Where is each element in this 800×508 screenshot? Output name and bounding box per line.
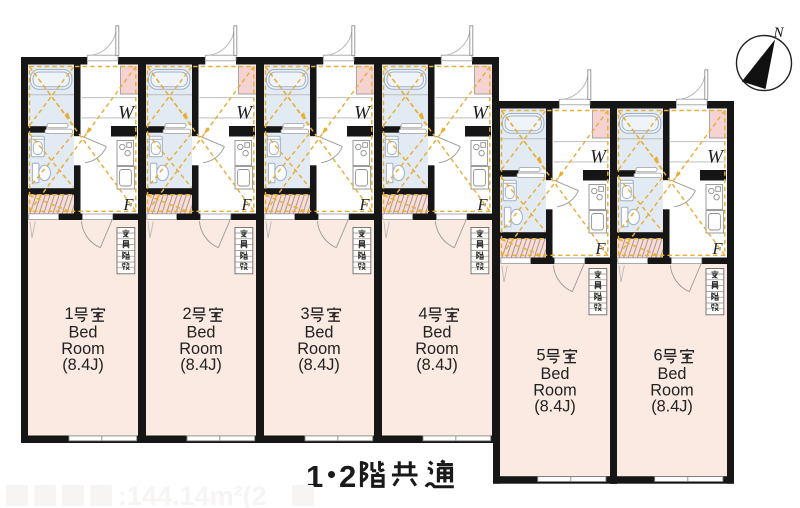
svg-text:4: 4 <box>418 305 427 323</box>
svg-text:W: W <box>472 102 490 123</box>
svg-text:Bed: Bed <box>187 323 216 341</box>
svg-text:(8.4J): (8.4J) <box>534 397 576 415</box>
svg-text:(8.4J): (8.4J) <box>62 356 104 374</box>
svg-text:3: 3 <box>300 305 309 323</box>
svg-text:N: N <box>772 25 784 41</box>
svg-text:(8.4J): (8.4J) <box>298 356 340 374</box>
svg-text:6: 6 <box>653 347 662 365</box>
svg-text:Bed: Bed <box>423 323 452 341</box>
svg-text:Bed: Bed <box>541 365 570 383</box>
svg-text:(8.4J): (8.4J) <box>651 397 693 415</box>
svg-text:5: 5 <box>536 347 545 365</box>
svg-text:W: W <box>118 102 136 123</box>
svg-text:(8.4J): (8.4J) <box>416 356 458 374</box>
svg-text:Bed: Bed <box>69 323 98 341</box>
svg-text:2: 2 <box>339 459 356 494</box>
svg-text:W: W <box>590 146 608 167</box>
svg-text:W: W <box>707 146 725 167</box>
svg-text:Bed: Bed <box>305 323 334 341</box>
svg-text:(8.4J): (8.4J) <box>180 356 222 374</box>
svg-text::144.14m²(2: :144.14m²(2 <box>118 481 267 508</box>
svg-text:W: W <box>236 102 254 123</box>
svg-text:Bed: Bed <box>658 365 687 383</box>
svg-text:1: 1 <box>64 305 73 323</box>
svg-text:W: W <box>354 102 372 123</box>
svg-text:2: 2 <box>182 305 191 323</box>
